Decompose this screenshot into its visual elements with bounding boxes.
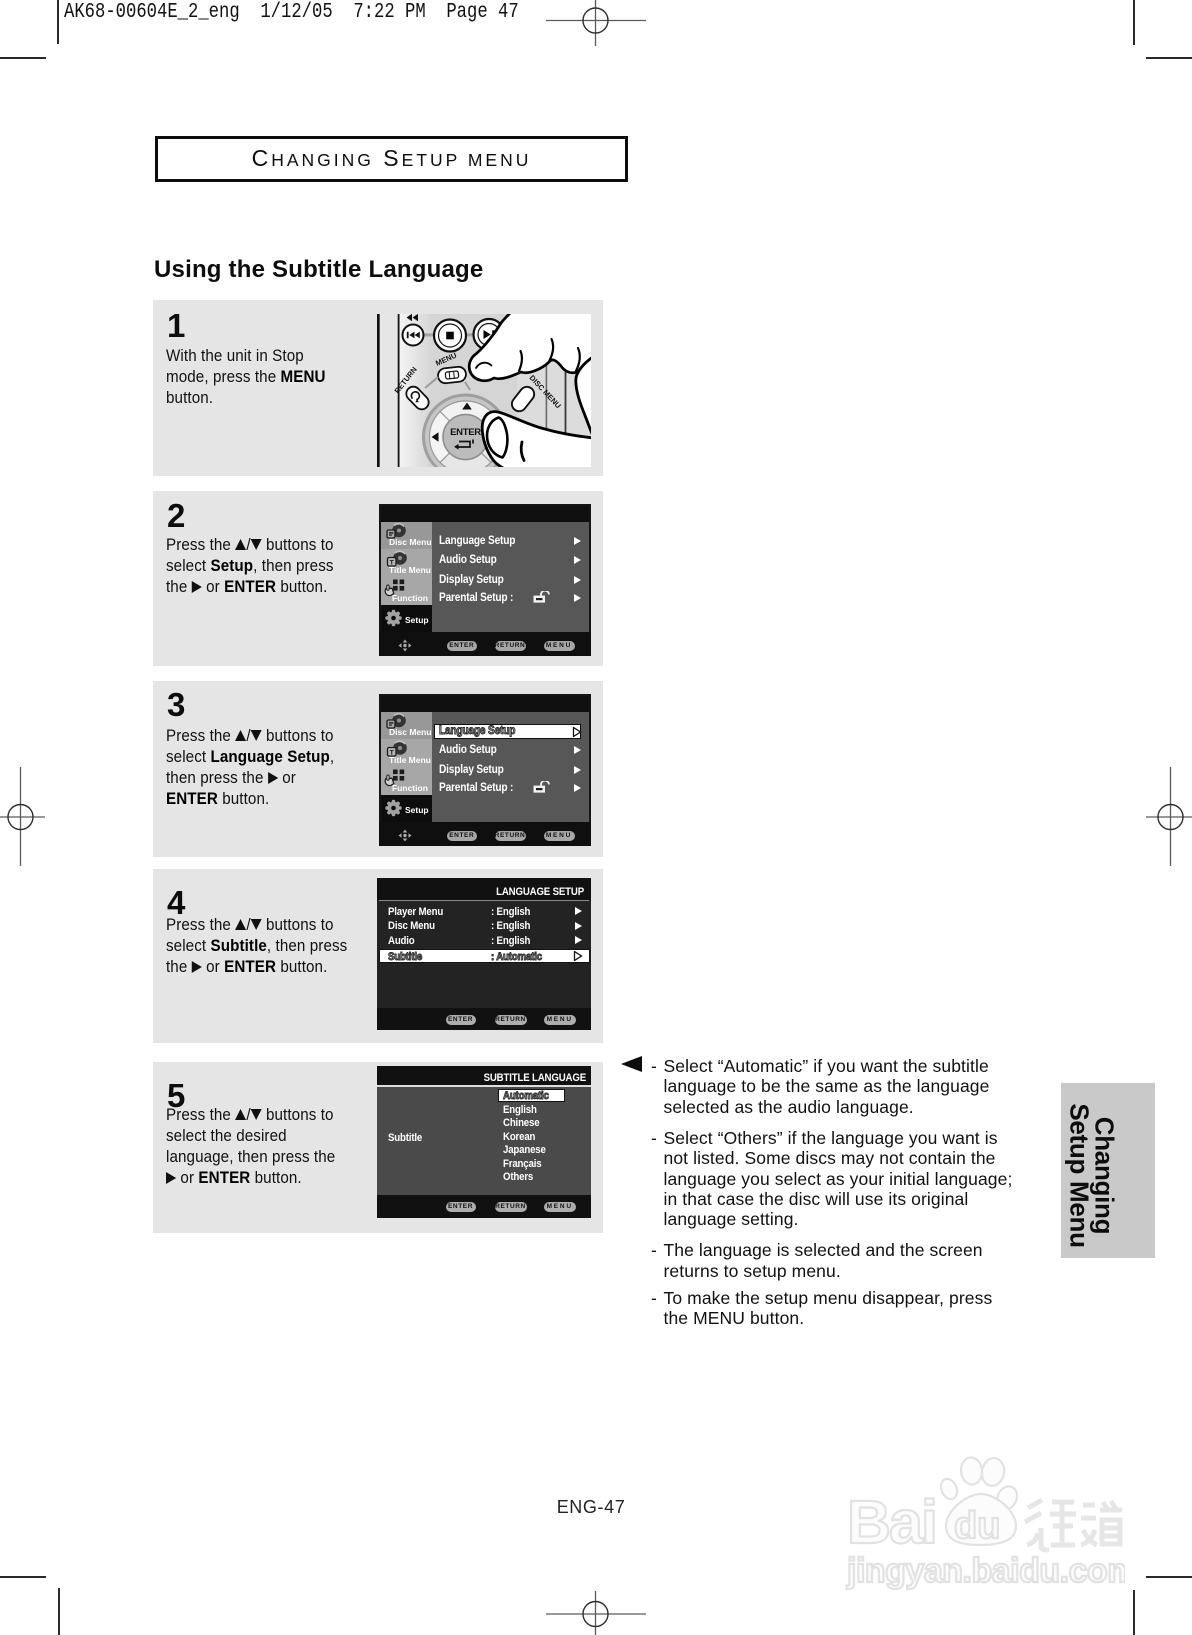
svg-text:jingyan.baidu.com: jingyan.baidu.com <box>846 1552 1125 1590</box>
svg-text:Bai: Bai <box>847 1488 936 1556</box>
svg-text:ENTER: ENTER <box>450 427 481 438</box>
svg-text:du: du <box>954 1505 1000 1547</box>
